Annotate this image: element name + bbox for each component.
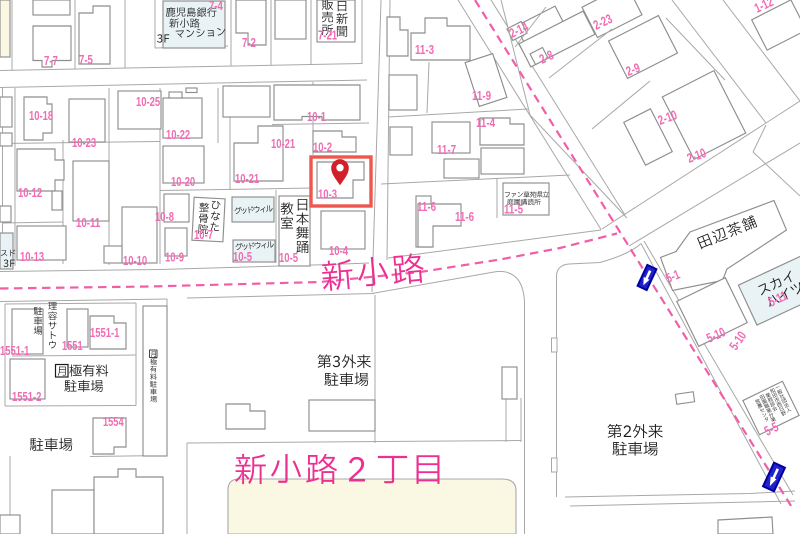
svg-text:10-5: 10-5 [279, 250, 298, 265]
svg-text:11-6: 11-6 [455, 209, 474, 224]
svg-text:10-21: 10-21 [271, 136, 295, 151]
svg-text:1551: 1551 [62, 338, 83, 353]
svg-text:10-23: 10-23 [72, 135, 96, 150]
svg-text:7-2: 7-2 [242, 35, 256, 50]
svg-text:10-18: 10-18 [29, 108, 53, 123]
svg-text:10-3: 10-3 [318, 187, 337, 202]
svg-text:10-21: 10-21 [235, 171, 259, 186]
svg-text:7-5: 7-5 [79, 52, 93, 67]
svg-text:10-25: 10-25 [136, 94, 160, 109]
svg-text:10-11: 10-11 [76, 215, 100, 230]
svg-text:11-7: 11-7 [437, 142, 456, 157]
svg-text:1551-1: 1551-1 [90, 325, 119, 340]
svg-text:10-7: 10-7 [194, 227, 213, 242]
svg-text:10-9: 10-9 [165, 250, 184, 265]
svg-text:11-5: 11-5 [504, 202, 523, 217]
svg-text:10-2: 10-2 [313, 140, 332, 155]
svg-text:7-4: 7-4 [209, 0, 223, 13]
svg-text:10-10: 10-10 [123, 253, 147, 268]
svg-text:7-21: 7-21 [318, 28, 337, 43]
svg-text:10-1: 10-1 [307, 109, 326, 124]
svg-text:10-22: 10-22 [166, 127, 190, 142]
svg-text:11-9: 11-9 [472, 88, 491, 103]
svg-text:11-3: 11-3 [415, 42, 434, 57]
svg-text:1551-2: 1551-2 [12, 389, 41, 404]
svg-text:10-12: 10-12 [18, 185, 42, 200]
svg-text:1551-1: 1551-1 [0, 343, 29, 358]
svg-text:10-4: 10-4 [329, 243, 349, 258]
svg-text:10-8: 10-8 [155, 209, 174, 224]
svg-text:10-20: 10-20 [171, 174, 195, 189]
svg-text:10-5: 10-5 [233, 249, 252, 264]
svg-text:10-13: 10-13 [20, 249, 44, 264]
svg-text:11-6: 11-6 [417, 199, 436, 214]
svg-text:7-7: 7-7 [44, 53, 58, 68]
svg-text:11-4: 11-4 [476, 115, 496, 130]
svg-text:1554: 1554 [103, 414, 124, 429]
